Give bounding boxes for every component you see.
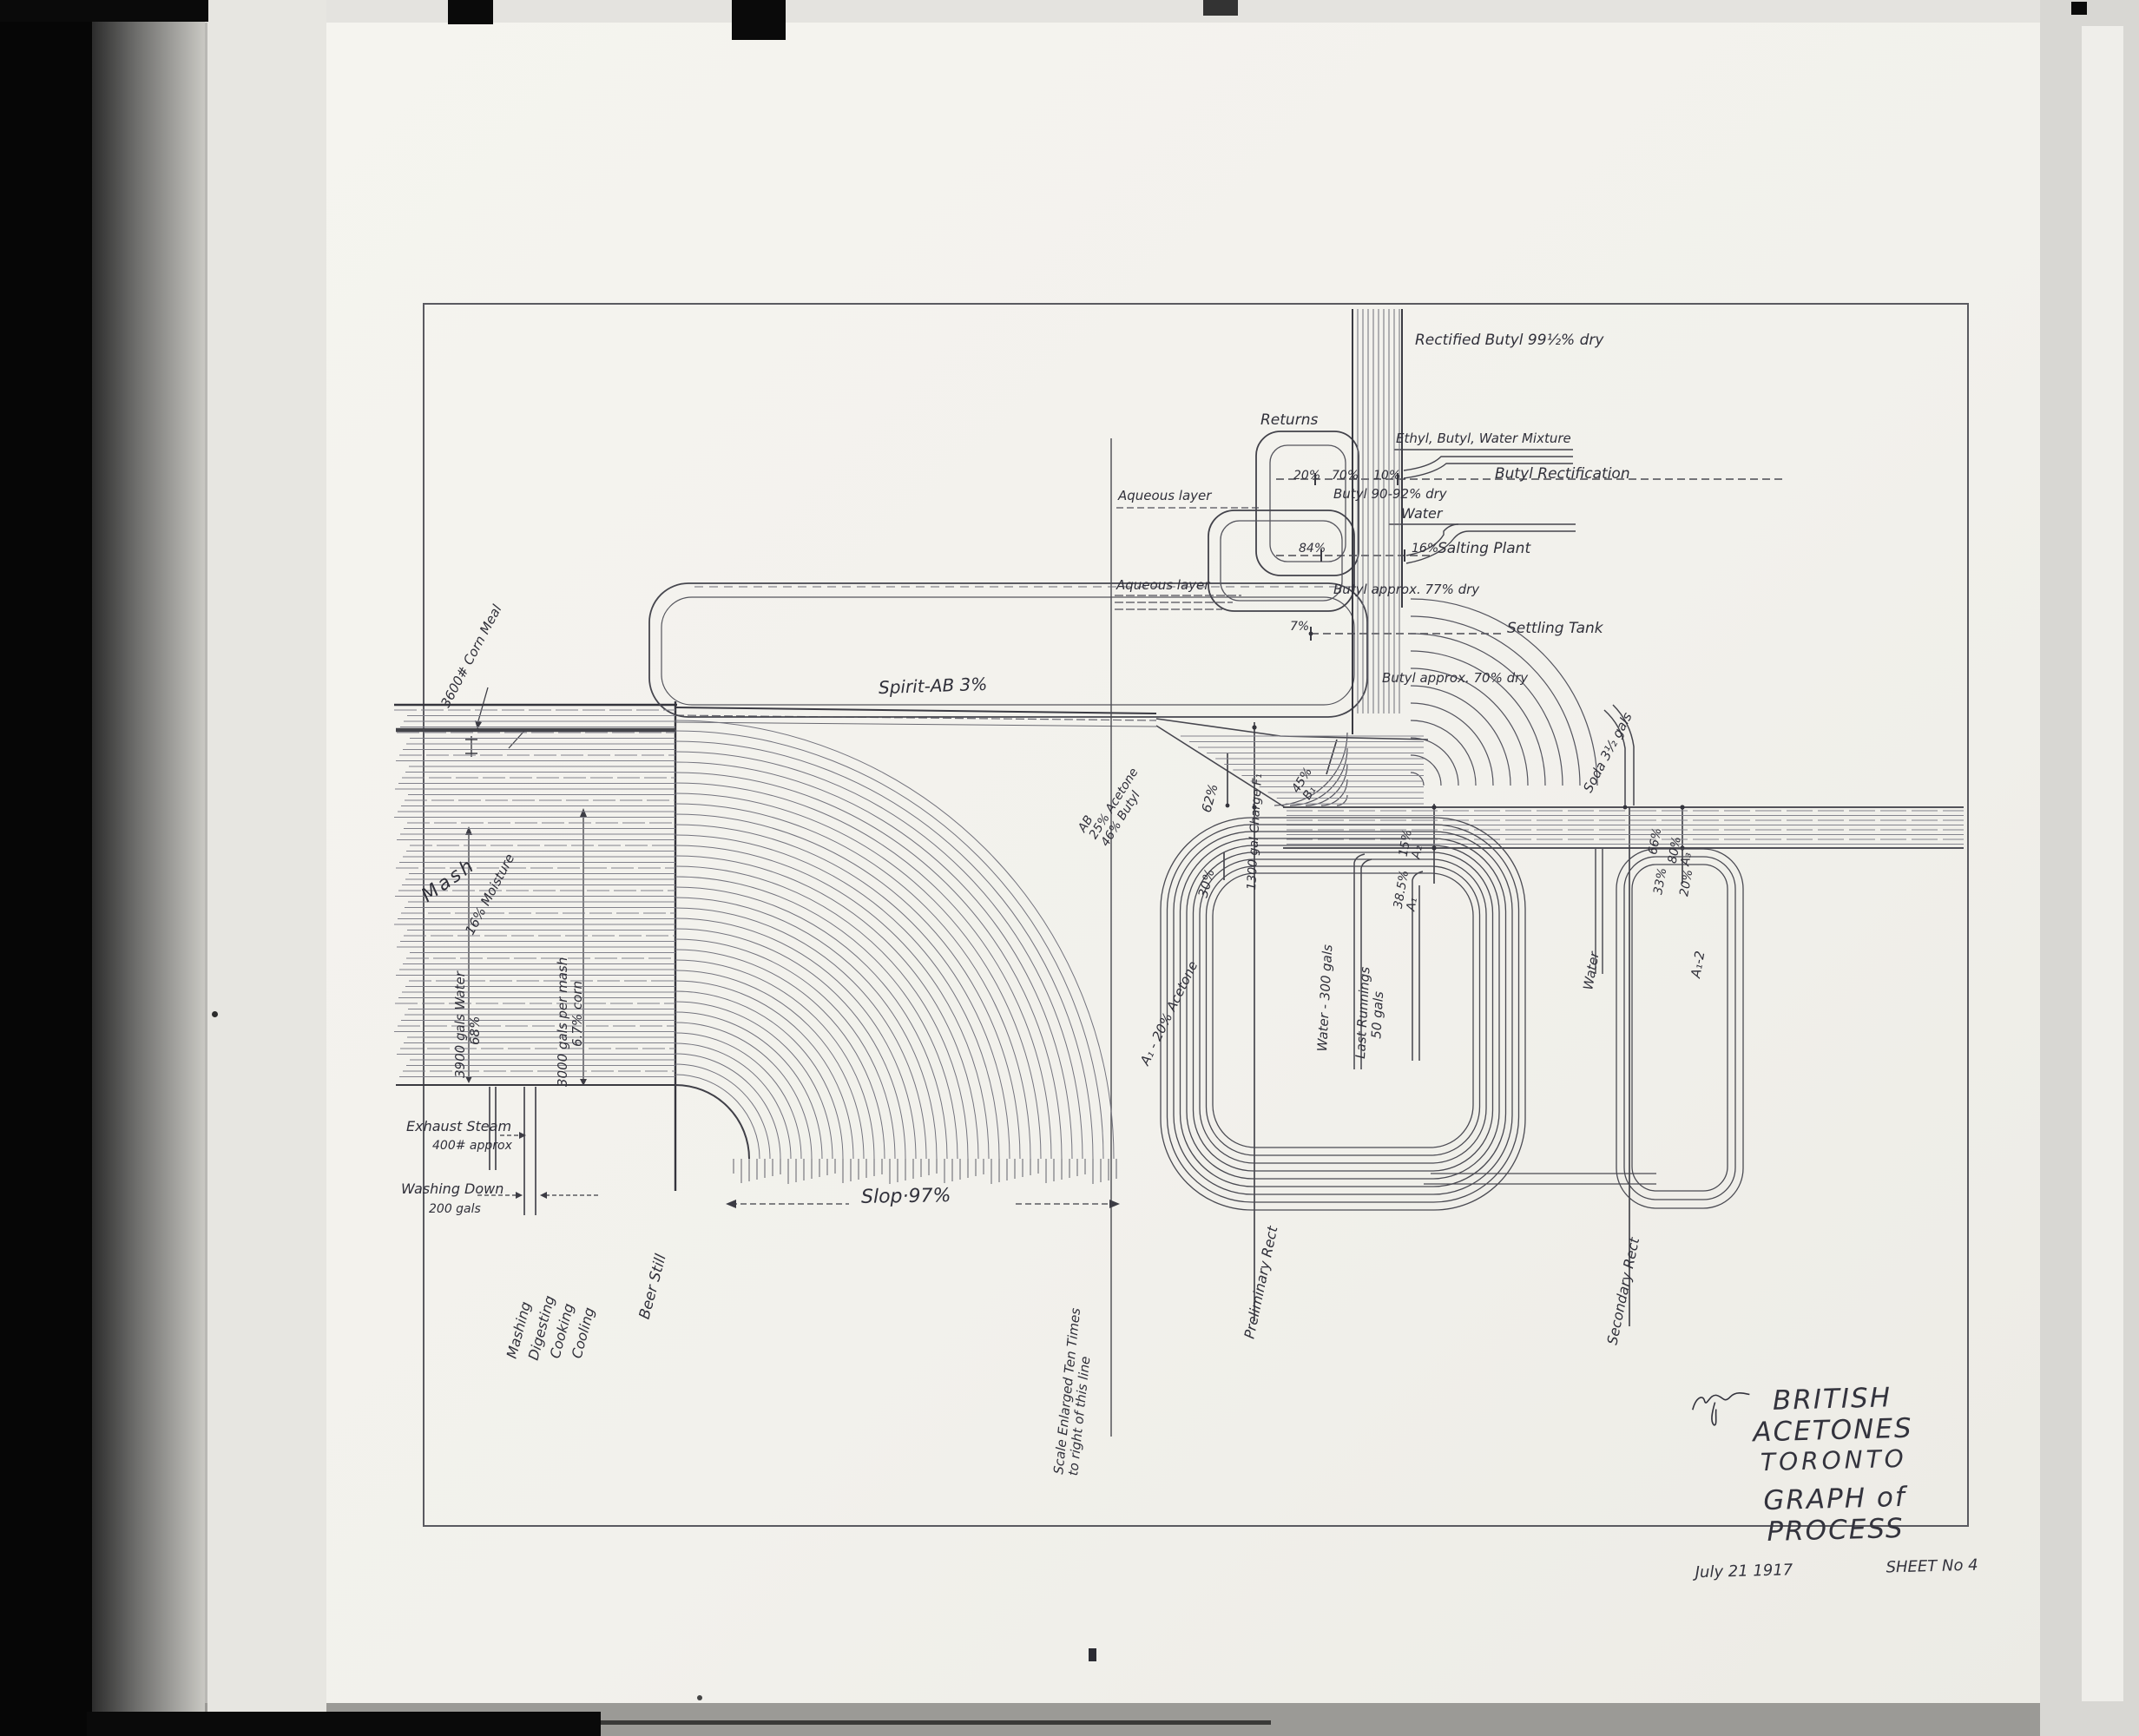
ethyl-mix-label: Ethyl, Butyl, Water Mixture bbox=[1396, 431, 1571, 446]
spirit-line bbox=[675, 707, 1156, 713]
butyl-77-label: Butyl approx. 77% dry bbox=[1333, 582, 1479, 597]
title-block: BRITISH ACETONES TORONTO GRAPH of PROCES… bbox=[1688, 1380, 1980, 1582]
drawing-date: July 21 1917 bbox=[1695, 1561, 1793, 1581]
mash-water-label: 3900 gals Water 68% bbox=[453, 971, 482, 1078]
butyl-9092-label: Butyl 90-92% dry bbox=[1333, 486, 1447, 502]
aqueous-layer-1-label: Aqueous layer bbox=[1118, 488, 1211, 503]
slop-label: Slop·97% bbox=[861, 1185, 951, 1208]
a2-label: 15% A₂ bbox=[1398, 829, 1429, 860]
rectified-butyl-label: Rectified Butyl 99½% dry bbox=[1415, 332, 1603, 349]
spirit-label: Spirit-AB 3% bbox=[879, 674, 988, 698]
water-top-label: Water bbox=[1401, 505, 1442, 522]
butyl-70-label: Butyl approx. 70% dry bbox=[1382, 670, 1528, 686]
pct-7: 7% bbox=[1290, 620, 1309, 634]
pct-70: 70% bbox=[1332, 469, 1359, 483]
settling-tank-label: Settling Tank bbox=[1507, 620, 1603, 637]
returns-label: Returns bbox=[1260, 411, 1318, 429]
salting-plant-label: Salting Plant bbox=[1438, 540, 1530, 557]
a3-label: 80% A₃ bbox=[1667, 836, 1698, 867]
pct-84: 84% bbox=[1299, 542, 1326, 556]
signature bbox=[1688, 1385, 1757, 1427]
scanned-process-drawing: Mash 3900 gals Water 68% 3600# Corn Meal… bbox=[0, 0, 2139, 1736]
aqueous-layer-2-label: Aqueous layer bbox=[1116, 577, 1209, 593]
pct-20: 20% bbox=[1293, 469, 1320, 483]
pct-16: 16% bbox=[1412, 542, 1438, 556]
per-mash-label: 3000 gals per mash 6.7% corn bbox=[556, 957, 584, 1087]
sheet-number: SHEET No 4 bbox=[1886, 1556, 1978, 1577]
exhaust-steam-label: Exhaust Steam bbox=[406, 1118, 511, 1134]
drawing-title: GRAPH of PROCESS bbox=[1691, 1480, 1979, 1550]
washing-down-pipe bbox=[524, 1087, 536, 1215]
aqueous-return-loop bbox=[649, 583, 1367, 717]
pct-10: 10% bbox=[1373, 469, 1400, 483]
washing-down-label: Washing Down bbox=[401, 1180, 503, 1197]
butyl-rectification-label: Butyl Rectification bbox=[1495, 465, 1630, 483]
last-runnings-label: Last Runnings 50 gals bbox=[1353, 966, 1387, 1060]
